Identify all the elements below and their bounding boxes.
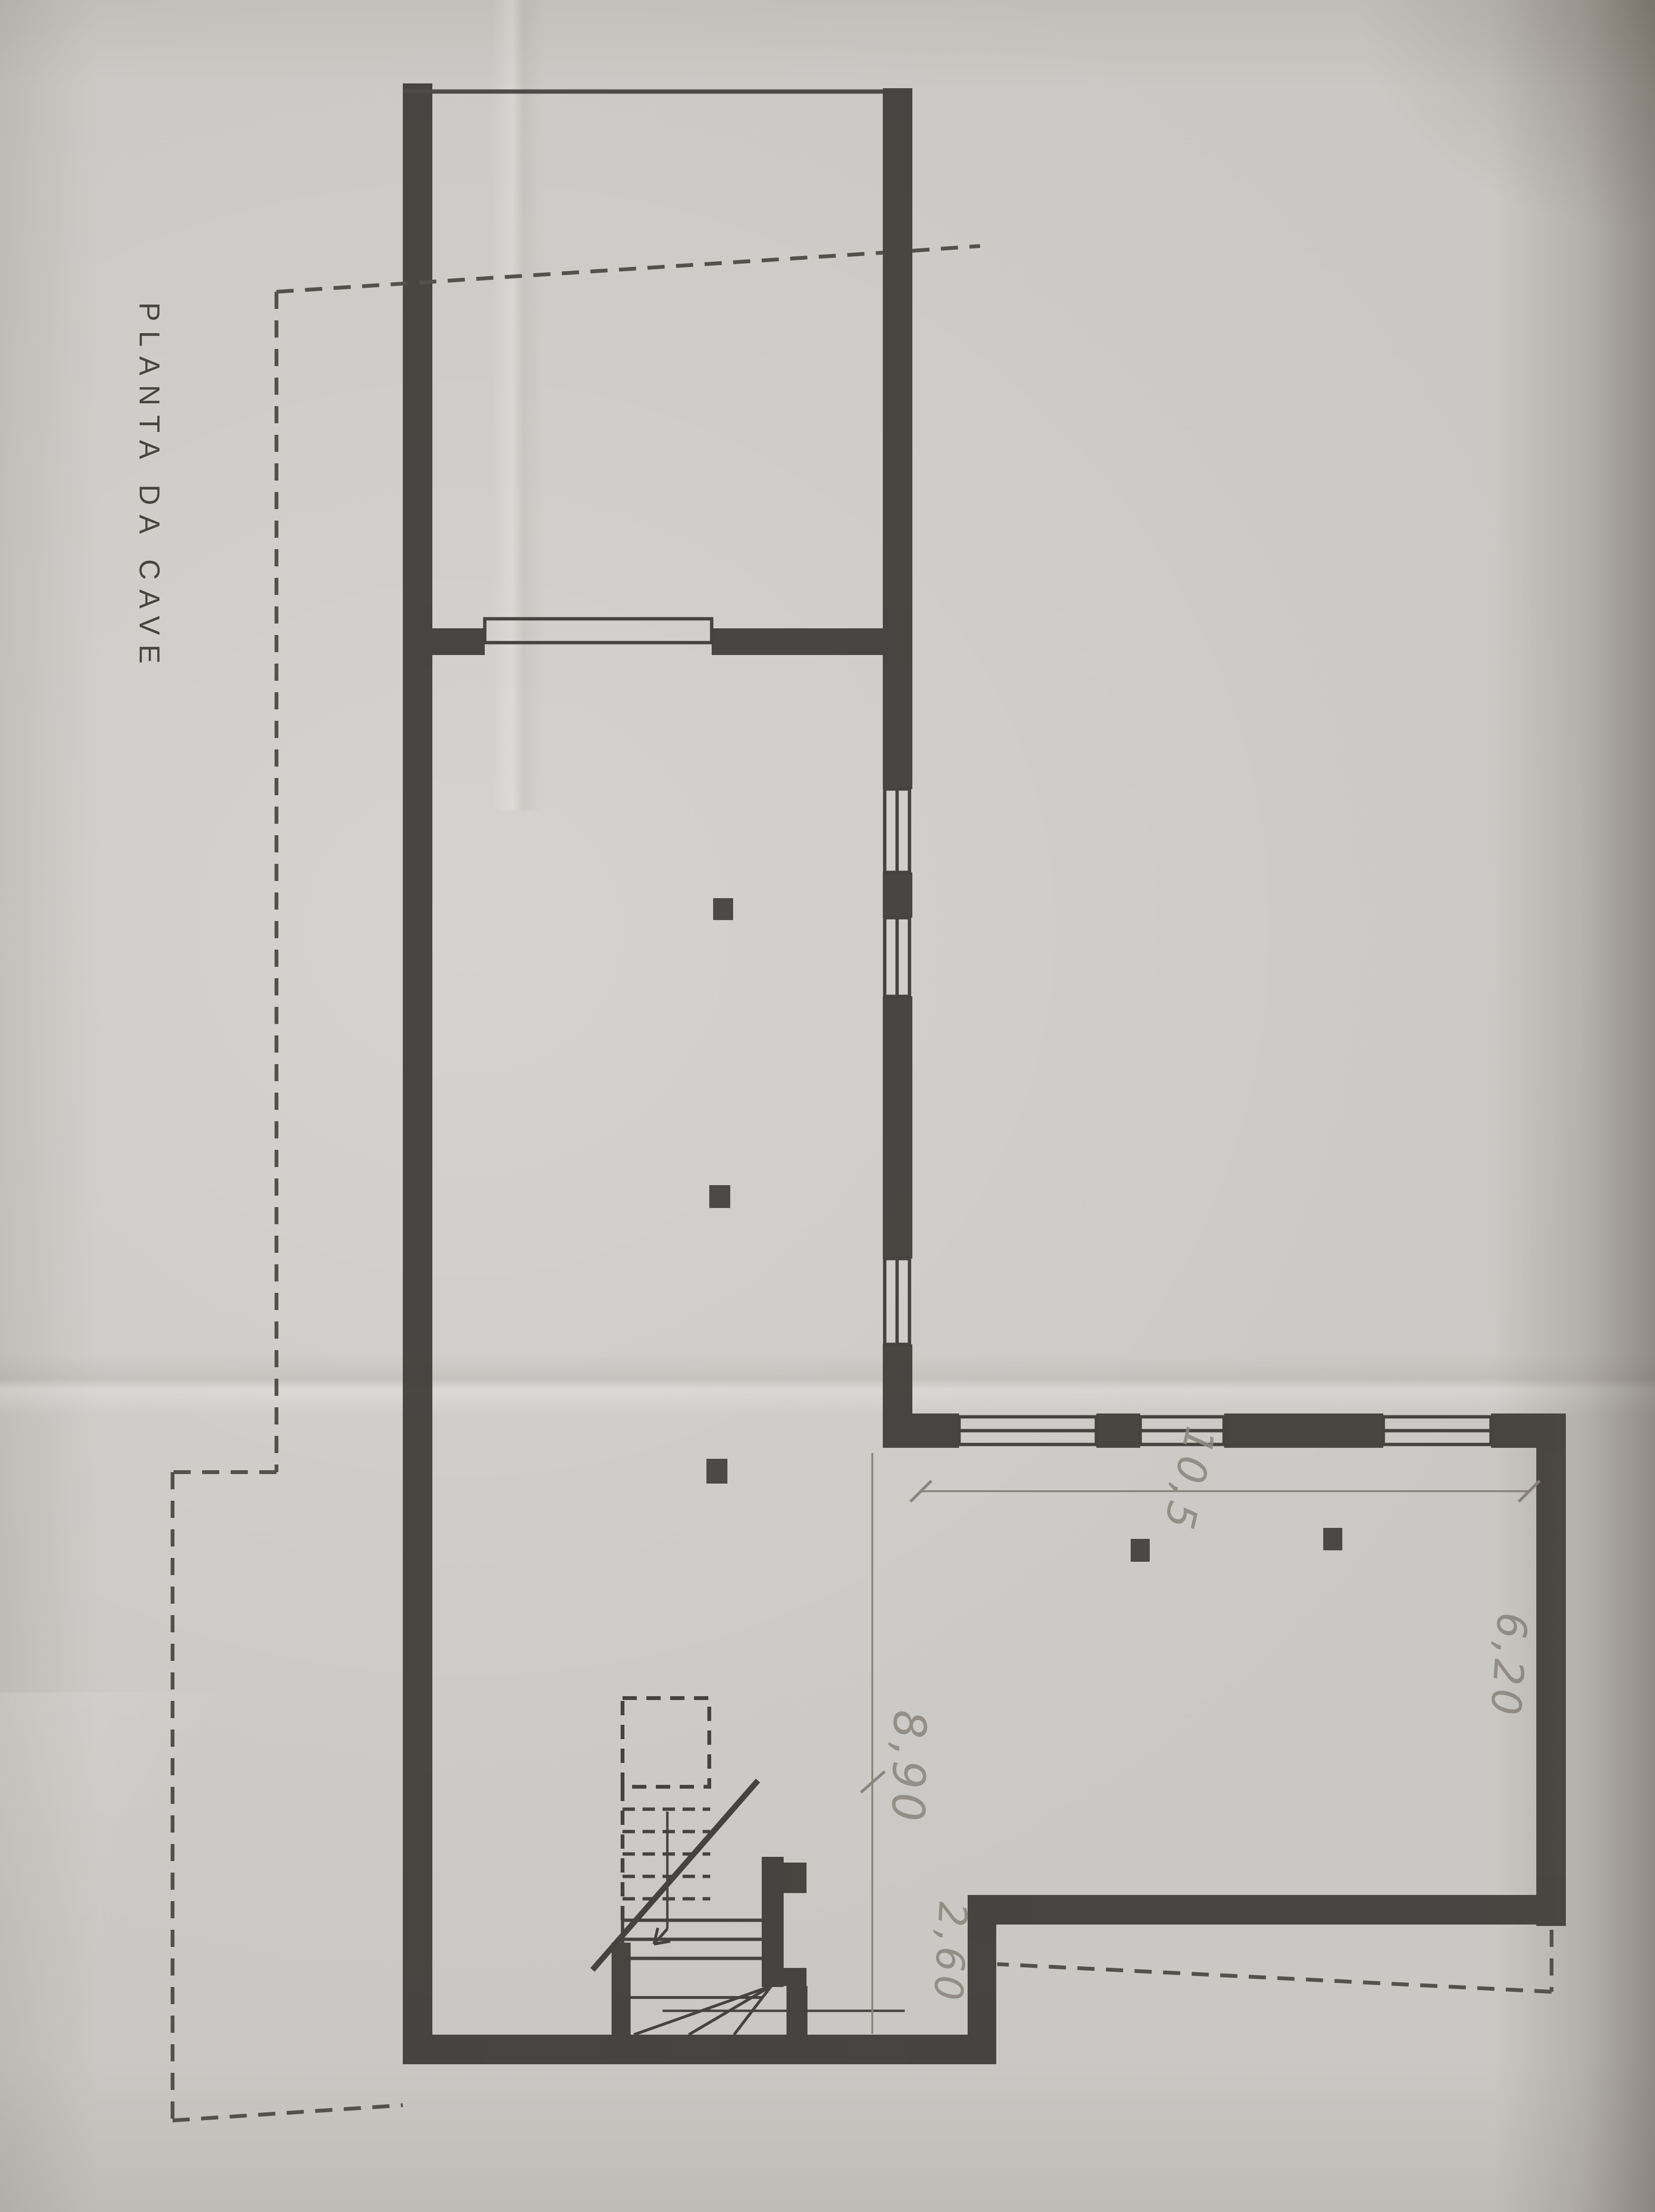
stair-wall-stub-3: [762, 1968, 807, 1986]
stair-wall-stub-1: [762, 1857, 784, 1987]
window-opening-bigroom-1: [959, 1417, 1096, 1444]
wall-segment-left: [403, 83, 432, 2064]
dimension-label-8-90: 8,90: [881, 1710, 935, 1825]
wall-segment-wing-right-1: [883, 88, 912, 789]
window-opening-wing-b: [885, 918, 909, 996]
scanned-floor-plan-photo: PLANTA DA CAVE 8,90 2,60 6,20 10,5: [0, 0, 1655, 2212]
interior-wall-left: [431, 628, 485, 655]
window-opening-wing-a: [885, 789, 909, 872]
stair-direction-arrow: [654, 1812, 670, 1944]
column: [1323, 1528, 1342, 1550]
wall-segment-wing-right-3: [883, 996, 912, 1259]
columns: [706, 898, 1342, 1562]
column: [709, 1185, 730, 1208]
interior-wall-right: [712, 628, 883, 655]
dashed-projection-line: [173, 2105, 403, 2120]
stair-break-line: [593, 1781, 758, 1970]
wall-segment-wing-right-4: [883, 1344, 912, 1413]
staircase: [593, 1698, 905, 2035]
dashed-projection-line: [912, 246, 980, 251]
dimension-label-2-60: 2,60: [925, 1901, 975, 2005]
stair-winder-treads: [629, 1986, 905, 2035]
plan-title: PLANTA DA CAVE: [133, 302, 166, 673]
window-opening-bigroom-3: [1383, 1417, 1491, 1444]
dashed-projection-line: [276, 253, 883, 292]
wall-bigroom-top-1: [883, 1413, 959, 1448]
wall-bigroom-top-3: [1224, 1413, 1383, 1448]
stair-upper-flight-dashed-outline: [623, 1698, 709, 1787]
stair-wall-stub-5: [612, 1943, 631, 2036]
stair-wall-stub-2: [784, 1863, 807, 1893]
wall-bigroom-top-2: [1096, 1413, 1140, 1448]
wall-segment-bottom: [403, 2035, 996, 2064]
column: [713, 898, 733, 920]
wall-segment-wing-right-2: [883, 872, 912, 918]
column: [706, 1459, 727, 1484]
walls: [403, 83, 1566, 2064]
window-opening-interior-wall: [485, 619, 712, 643]
column: [1131, 1539, 1150, 1562]
stair-treads-solid: [623, 1920, 762, 1958]
window-openings: [485, 619, 1491, 1444]
window-opening-wing-c: [885, 1259, 909, 1344]
dashed-projection-line: [997, 1964, 1552, 1992]
wall-bigroom-bottom: [968, 1895, 1566, 1925]
projection-dashed-lines: [173, 246, 1552, 2120]
photo-shading-right-edge: [1493, 0, 1655, 2212]
